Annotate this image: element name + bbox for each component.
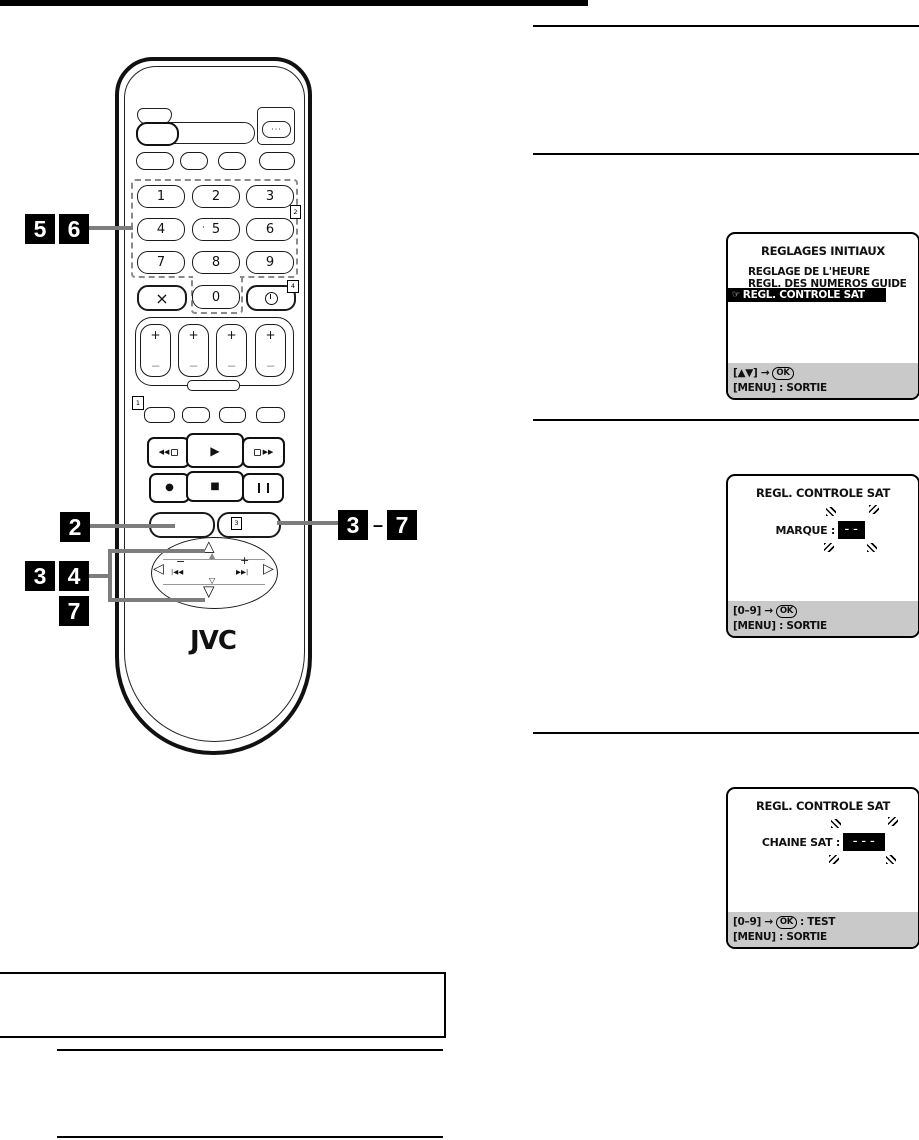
empty-note-box bbox=[0, 972, 446, 1038]
digit-5-label: 5 bbox=[212, 222, 220, 237]
step-3b-label: 3 bbox=[347, 512, 360, 539]
rocker2-plus: + bbox=[188, 328, 198, 342]
cancel-x-icon: × bbox=[155, 289, 168, 308]
cancel-key: × bbox=[137, 285, 187, 311]
nav-up-fill-icon: ▲ bbox=[209, 552, 215, 560]
rewind-icon: ◀◀ bbox=[159, 449, 170, 456]
sat-channel-field-label: CHAINE SAT : bbox=[728, 836, 840, 849]
stop-icon: ■ bbox=[210, 482, 219, 492]
bottom-rule-2 bbox=[57, 1136, 443, 1138]
pointing-hand-icon: ☞ bbox=[732, 290, 740, 300]
step-range-dash: – bbox=[370, 517, 386, 533]
screen2-footer-line2: [MENU] : SORTIE bbox=[733, 619, 918, 634]
footnote-marker-1: 1 bbox=[132, 396, 144, 410]
ok-keycap-icon: OK bbox=[776, 916, 797, 929]
blink-ray-tl bbox=[831, 819, 841, 828]
digit-key-6: 6 bbox=[246, 218, 294, 241]
rocker4-minus: − bbox=[265, 359, 275, 373]
step-5-callout: 5 bbox=[25, 214, 55, 244]
small-button-1 bbox=[144, 407, 175, 423]
digit-9-label: 9 bbox=[266, 255, 274, 270]
screen3-footer-line2: [MENU] : SORTIE bbox=[733, 930, 918, 945]
digit-key-7: 7 bbox=[137, 251, 185, 274]
brand-field-value: – – bbox=[838, 521, 865, 539]
digit-3-label: 3 bbox=[266, 189, 274, 204]
step-6-label: 6 bbox=[68, 216, 81, 243]
callout-37-line bbox=[277, 521, 338, 525]
rocker-4: + − bbox=[255, 324, 286, 377]
marker-4-label: 4 bbox=[291, 283, 295, 290]
digit-key-5: · 5 bbox=[192, 218, 240, 241]
bottom-rule-1 bbox=[57, 1049, 443, 1051]
small-button-2 bbox=[182, 407, 210, 423]
play-key: ▶ bbox=[186, 433, 244, 468]
screen2-footer: [0–9] →OK [MENU] : SORTIE bbox=[728, 601, 918, 636]
step-5-label: 5 bbox=[34, 216, 47, 243]
blink-ray-bl bbox=[824, 543, 834, 552]
footer1-prefix: [▲▼] → bbox=[733, 367, 769, 379]
nav-right-icon: ▷ bbox=[263, 562, 274, 576]
step-3-label: 3 bbox=[34, 563, 47, 590]
step-3-callout: 3 bbox=[25, 561, 55, 591]
osd-screen-sat-brand: REGL. CONTROLE SAT MARQUE : – – [0–9] →O… bbox=[726, 474, 919, 638]
footnote-marker-2: 2 bbox=[290, 205, 301, 219]
rocker4-plus: + bbox=[265, 328, 275, 342]
rocker2-minus: − bbox=[188, 359, 198, 373]
step-7-callout: 7 bbox=[59, 596, 89, 626]
screen1-title: REGLAGES INITIAUX bbox=[728, 244, 918, 258]
callout-bracket-top bbox=[112, 549, 205, 553]
function-button-1 bbox=[136, 152, 174, 170]
forward-mini-square-icon bbox=[254, 449, 261, 456]
nav-plus-label: + bbox=[240, 555, 249, 566]
rewind-mini-square-icon bbox=[171, 449, 178, 456]
brand-field-label: MARQUE : bbox=[728, 524, 835, 537]
digit-key-0: 0 bbox=[192, 285, 240, 309]
screen1-footer-line1: [▲▼] →OK bbox=[733, 366, 918, 381]
screen1-footer-line2: [MENU] : SORTIE bbox=[733, 381, 918, 396]
blink-ray-tr bbox=[869, 505, 879, 514]
rocker-1: + − bbox=[140, 324, 171, 377]
footer1-prefix: [0–9] → bbox=[733, 916, 773, 928]
menu-item-clock-set: REGLAGE DE L'HEURE bbox=[748, 266, 870, 278]
menu-item-sat-control-selected: ☞ REGL. CONTROLE SAT bbox=[728, 288, 886, 302]
blink-ray-br bbox=[886, 855, 896, 864]
marker-3-label: 3 bbox=[234, 520, 238, 527]
record-key: ● bbox=[149, 473, 190, 503]
rule-2 bbox=[533, 153, 919, 155]
thin-center-button bbox=[187, 380, 240, 391]
manual-page: ··· 1 2 3 4 · 5 6 7 8 9 × 0 2 4 + − + − … bbox=[0, 0, 919, 1140]
callout-bracket-vertical bbox=[108, 549, 112, 602]
top-black-bar bbox=[0, 0, 588, 6]
screen3-footer-line1: [0–9] →OK: TEST bbox=[733, 915, 918, 930]
marker-2-label: 2 bbox=[293, 209, 297, 216]
sat-button bbox=[217, 512, 281, 538]
footnote-marker-4: 4 bbox=[287, 280, 299, 293]
rule-4 bbox=[533, 732, 919, 734]
footer1-suffix: : TEST bbox=[800, 916, 835, 928]
pause-key bbox=[242, 473, 284, 503]
step-6-callout: 6 bbox=[59, 214, 89, 244]
rocker-2: + − bbox=[178, 324, 209, 377]
digit-0-label: 0 bbox=[212, 290, 220, 305]
screen3-title: REGL. CONTROLE SAT bbox=[728, 799, 918, 813]
rule-3 bbox=[533, 419, 919, 421]
skip-back-icon: |◀◀ bbox=[171, 569, 183, 576]
step-3b-callout: 3 bbox=[338, 510, 368, 540]
step-2-callout: 2 bbox=[60, 512, 90, 542]
blink-ray-bl bbox=[829, 855, 839, 864]
digit-key-8: 8 bbox=[192, 251, 240, 274]
function-button-2 bbox=[180, 152, 208, 170]
pause-icon bbox=[258, 483, 269, 493]
osd-screen-initial-settings: REGLAGES INITIAUX REGLAGE DE L'HEURE REG… bbox=[726, 232, 919, 400]
digit-key-2: 2 bbox=[192, 185, 240, 208]
digit-7-label: 7 bbox=[157, 255, 165, 270]
rocker-3: + − bbox=[216, 324, 247, 377]
step-2-label: 2 bbox=[69, 514, 82, 541]
blink-ray-br bbox=[867, 543, 877, 552]
footnote-marker-3: 3 bbox=[231, 517, 242, 530]
record-icon: ● bbox=[165, 483, 174, 493]
rocker3-plus: + bbox=[226, 328, 236, 342]
brand-logo: JVC bbox=[182, 626, 244, 656]
rewind-key: ◀◀ bbox=[147, 437, 190, 468]
digit-2-label: 2 bbox=[212, 189, 220, 204]
step-7b-callout: 7 bbox=[387, 510, 417, 540]
screen1-footer: [▲▼] →OK [MENU] : SORTIE bbox=[728, 363, 918, 398]
slider-knob bbox=[136, 122, 179, 146]
callout-2-line bbox=[90, 524, 175, 528]
nav-left-icon: ◁ bbox=[153, 562, 164, 576]
selected-item-label: REGL. CONTROLE SAT bbox=[743, 289, 865, 301]
digit-key-1: 1 bbox=[137, 185, 185, 208]
function-button-3 bbox=[218, 152, 246, 170]
small-button-4 bbox=[256, 407, 285, 423]
rocker1-minus: − bbox=[150, 359, 160, 373]
forward-icon: ▶▶ bbox=[263, 449, 274, 456]
forward-key: ▶▶ bbox=[242, 437, 285, 468]
step-4-callout: 4 bbox=[59, 561, 89, 591]
dots-button: ··· bbox=[262, 121, 291, 138]
sat-channel-field-value: – – – bbox=[843, 833, 885, 851]
callout-56-line bbox=[89, 226, 133, 230]
ok-keycap-icon: OK bbox=[776, 605, 797, 618]
footer1-prefix: [0–9] → bbox=[733, 605, 773, 617]
nav-down-icon: ▽ bbox=[203, 584, 215, 599]
skip-fwd-icon: ▶▶| bbox=[236, 569, 248, 576]
play-icon: ▶ bbox=[210, 445, 219, 457]
marker-1-label: 1 bbox=[136, 400, 140, 407]
ok-keycap-icon: OK bbox=[772, 367, 793, 380]
screen2-footer-line1: [0–9] →OK bbox=[733, 604, 918, 619]
rocker1-plus: + bbox=[150, 328, 160, 342]
digit-1-label: 1 bbox=[157, 189, 165, 204]
screen3-footer: [0–9] →OK: TEST [MENU] : SORTIE bbox=[728, 912, 918, 947]
rocker3-minus: − bbox=[226, 359, 236, 373]
rule-1 bbox=[533, 25, 919, 27]
digit-4-label: 4 bbox=[157, 222, 165, 237]
step-7-label: 7 bbox=[68, 598, 81, 625]
clock-icon bbox=[265, 292, 278, 305]
digit-8-label: 8 bbox=[212, 255, 220, 270]
digit-key-4: 4 bbox=[137, 218, 185, 241]
screen2-title: REGL. CONTROLE SAT bbox=[728, 486, 918, 500]
callout-bracket-bottom bbox=[112, 598, 205, 602]
key5-tactile-dot: · bbox=[202, 223, 205, 233]
function-button-4 bbox=[259, 152, 295, 170]
blink-ray-tl bbox=[826, 507, 836, 516]
digit-6-label: 6 bbox=[266, 222, 274, 237]
small-button-3 bbox=[219, 407, 246, 423]
blink-ray-tr bbox=[888, 817, 898, 826]
step-4-label: 4 bbox=[68, 563, 81, 590]
digit-key-9: 9 bbox=[246, 251, 294, 274]
osd-screen-sat-channel: REGL. CONTROLE SAT CHAINE SAT : – – – [0… bbox=[726, 787, 919, 949]
stop-key: ■ bbox=[186, 471, 244, 502]
step-7b-label: 7 bbox=[396, 512, 409, 539]
digit-key-3: 3 bbox=[246, 185, 294, 208]
nav-minus-label: − bbox=[176, 556, 185, 567]
